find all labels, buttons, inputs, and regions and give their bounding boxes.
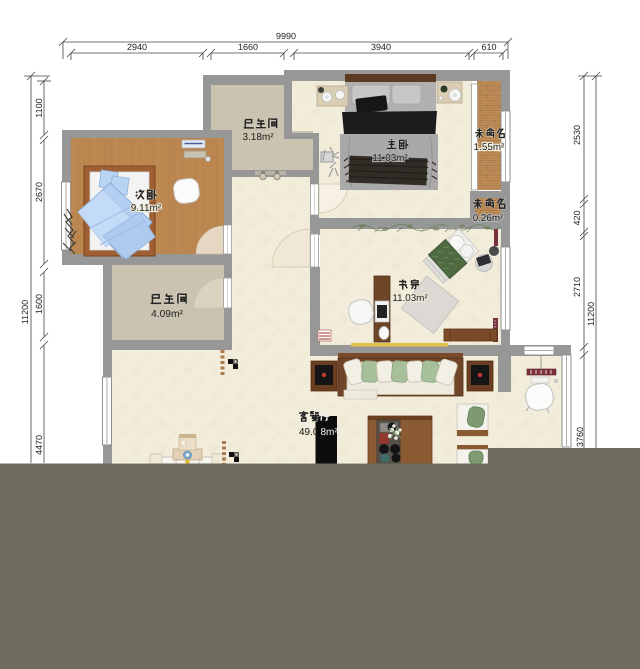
- svg-text:610: 610: [481, 42, 496, 52]
- svg-text:11.03m²: 11.03m²: [372, 153, 408, 164]
- svg-text:2940: 2940: [127, 42, 147, 52]
- svg-text:1600: 1600: [34, 294, 44, 314]
- svg-text:11200: 11200: [20, 300, 30, 324]
- svg-text:8m²: 8m²: [321, 427, 339, 438]
- svg-text:4470: 4470: [34, 435, 44, 455]
- svg-text:4.09m²: 4.09m²: [151, 309, 183, 320]
- svg-text:2530: 2530: [572, 125, 582, 145]
- svg-text:3.18m²: 3.18m²: [242, 132, 274, 143]
- svg-text:11.03m²: 11.03m²: [392, 293, 428, 304]
- svg-text:3760: 3760: [575, 427, 585, 447]
- svg-text:1660: 1660: [238, 42, 258, 52]
- svg-text:1.55m²: 1.55m²: [474, 142, 505, 153]
- svg-text:2670: 2670: [34, 182, 44, 202]
- svg-text:49.0: 49.0: [299, 427, 319, 438]
- svg-text:9990: 9990: [276, 31, 296, 41]
- svg-text:0.26m²: 0.26m²: [473, 213, 504, 224]
- svg-text:11200: 11200: [586, 302, 596, 326]
- svg-text:1100: 1100: [34, 98, 44, 117]
- svg-text:2710: 2710: [572, 277, 582, 297]
- svg-text:420: 420: [572, 210, 582, 225]
- svg-text:3940: 3940: [371, 42, 391, 52]
- svg-text:9.11m²: 9.11m²: [131, 203, 162, 214]
